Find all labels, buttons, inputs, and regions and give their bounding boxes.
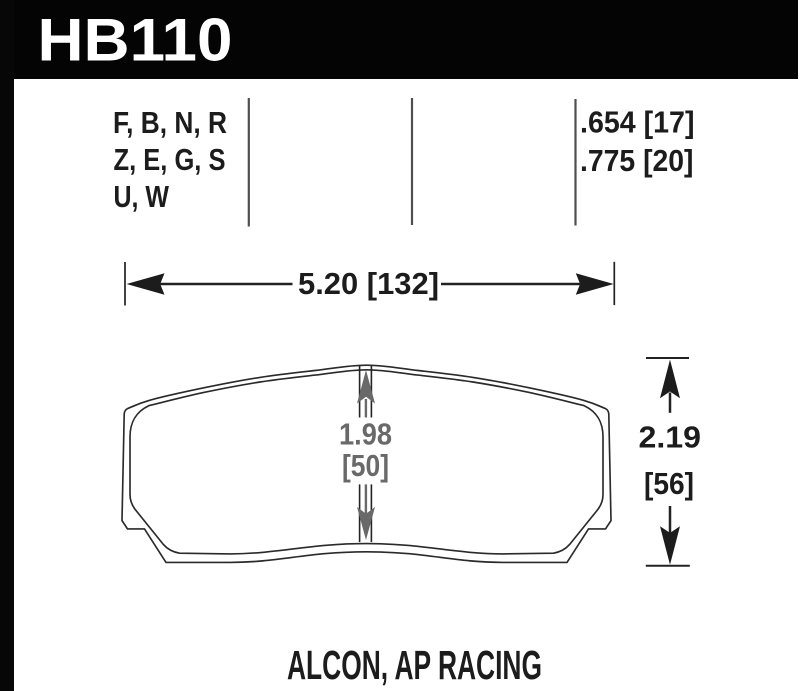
svg-text:HB110: HB110 [38,6,233,74]
svg-text:2.19: 2.19 [639,421,702,455]
svg-text:ALCON, AP RACING: ALCON, AP RACING [287,642,542,688]
svg-text:1.98: 1.98 [339,418,392,452]
svg-text:[50]: [50] [342,449,389,483]
svg-text:.775 [20]: .775 [20] [580,144,694,178]
svg-text:[56]: [56] [644,467,694,501]
svg-text:5.20 [132]: 5.20 [132] [298,267,439,301]
svg-text:U, W: U, W [114,180,170,214]
svg-text:Z, E, G, S: Z, E, G, S [114,143,226,177]
svg-text:F, B, N, R: F, B, N, R [113,106,227,140]
svg-text:.654 [17]: .654 [17] [580,105,695,139]
